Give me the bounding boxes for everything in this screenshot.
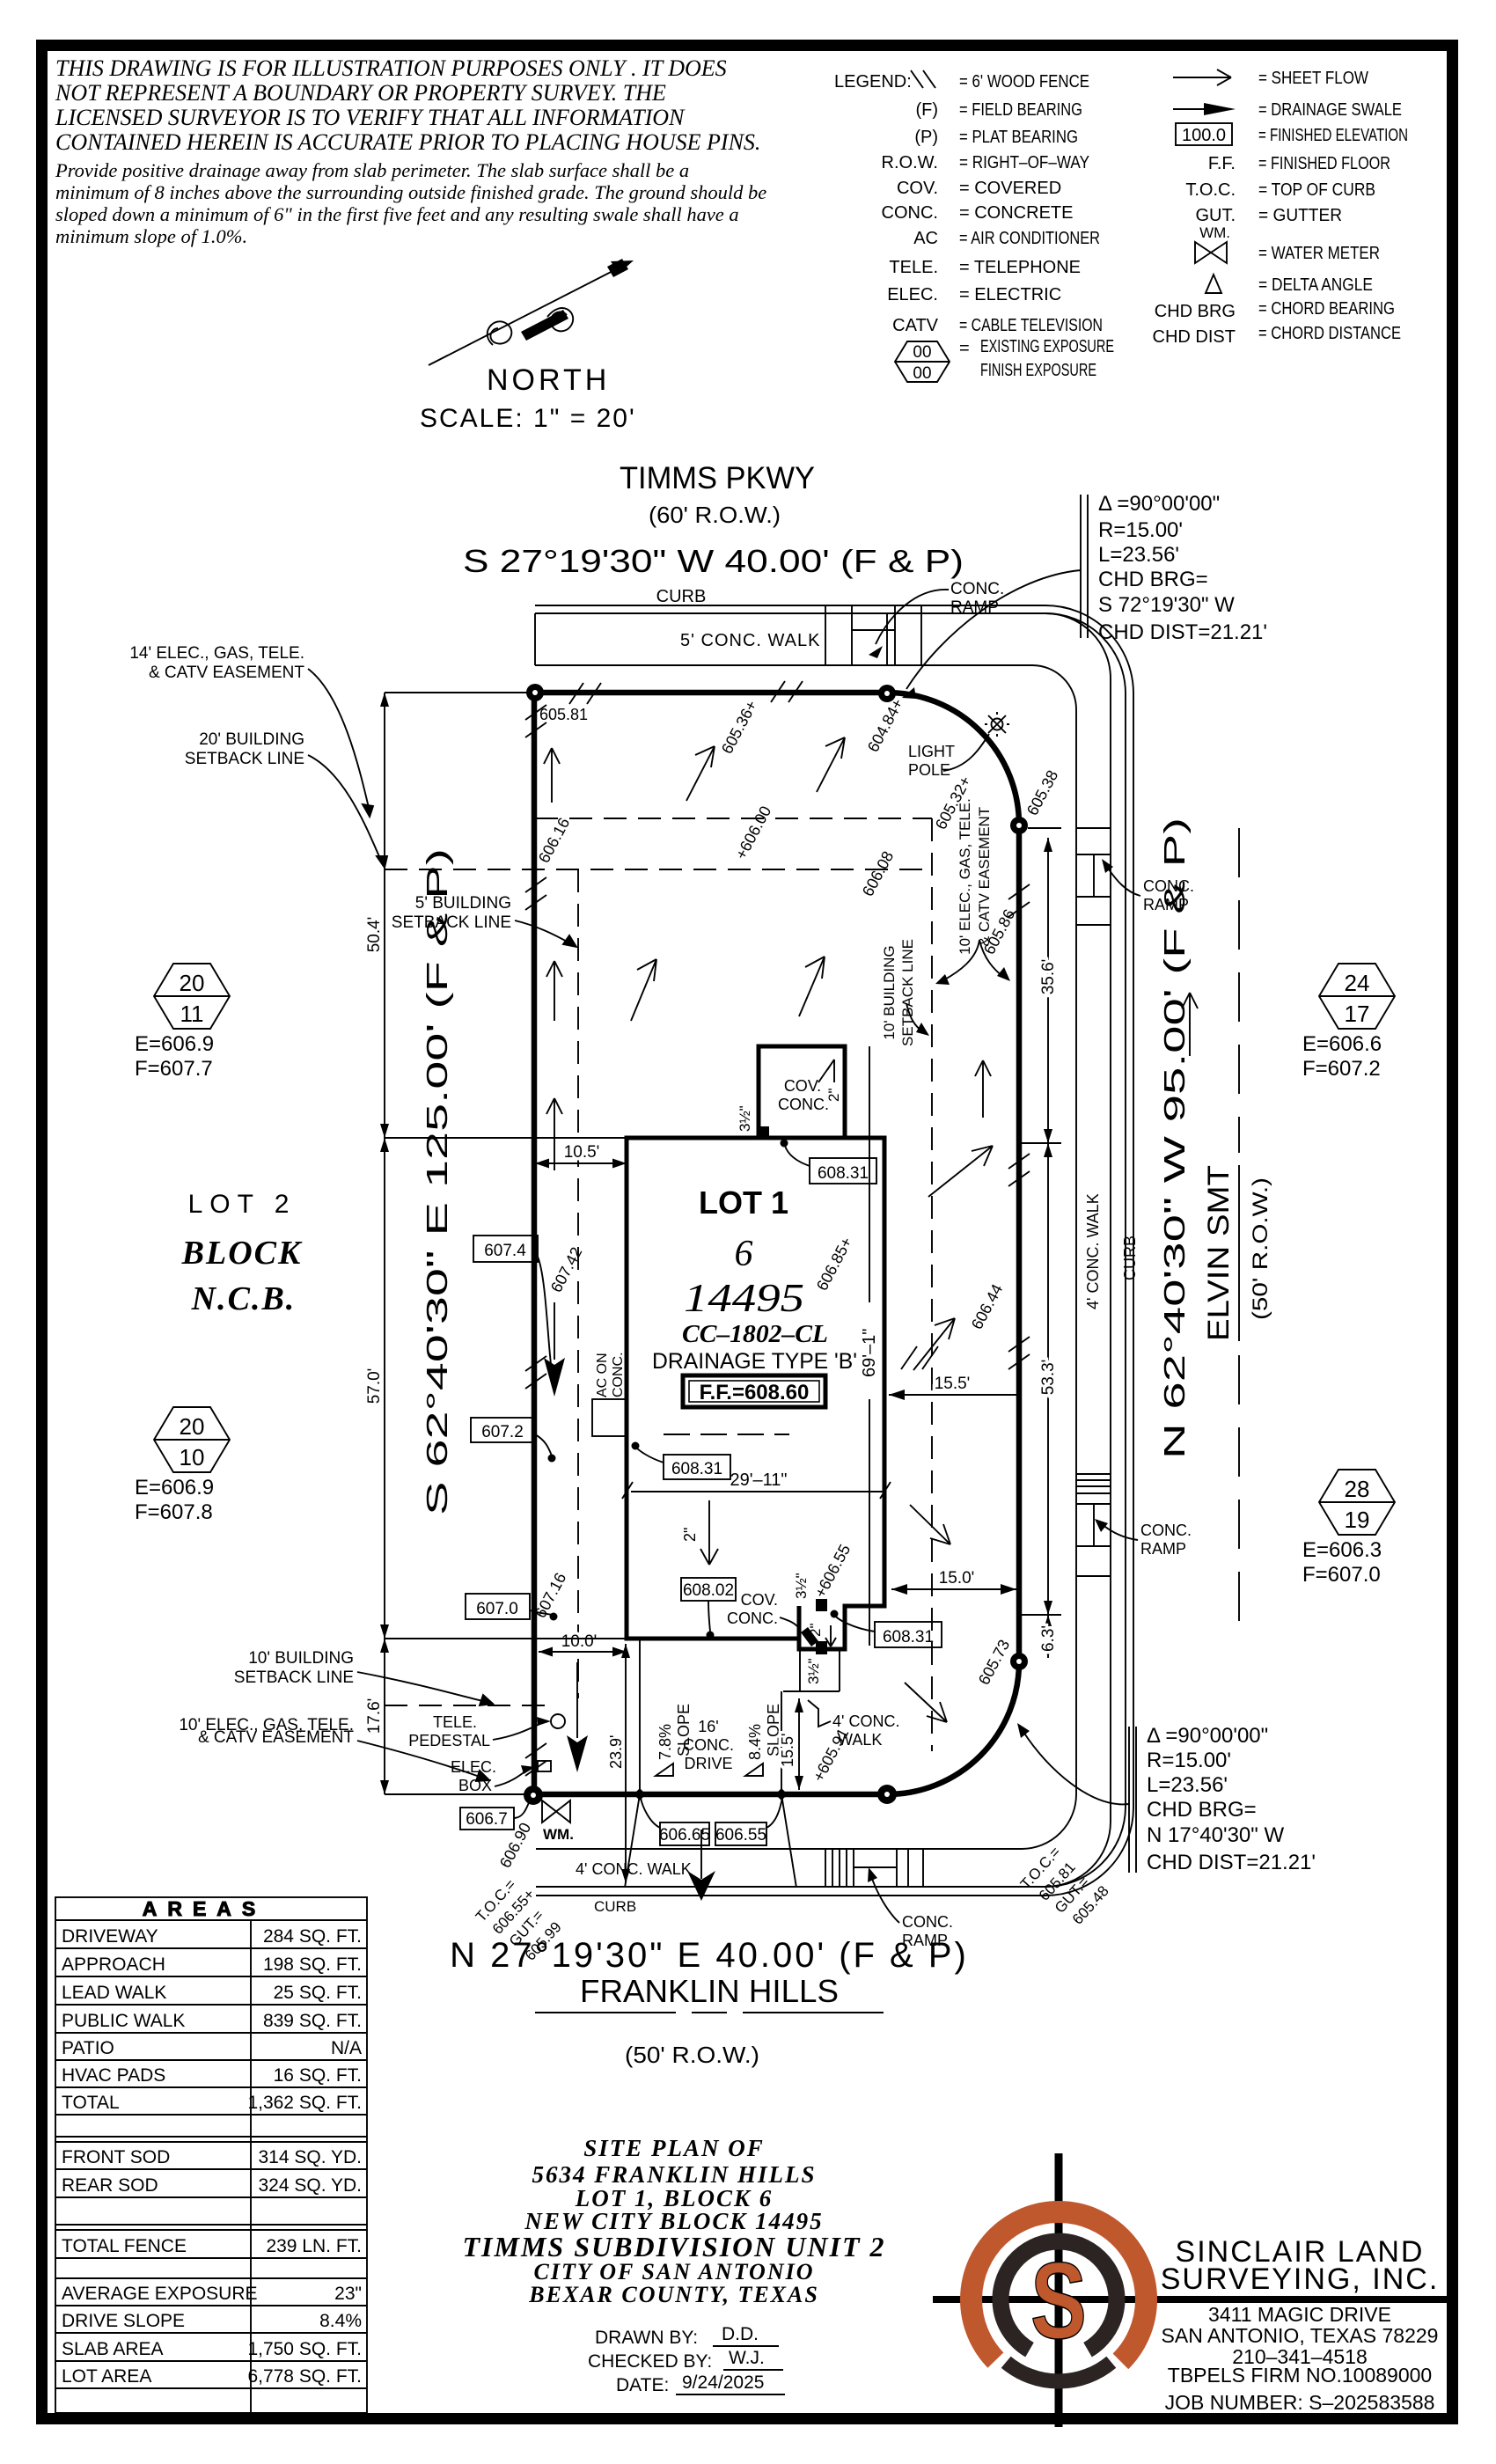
svg-text:Provide positive drainage away: Provide positive drainage away from slab…	[55, 159, 689, 181]
svg-text:1,750 SQ. FT.: 1,750 SQ. FT.	[247, 2339, 362, 2359]
svg-text:LIGHT: LIGHT	[908, 743, 955, 760]
svg-text:57.0': 57.0'	[365, 1368, 384, 1404]
svg-text:ELVIN SMT: ELVIN SMT	[1202, 1165, 1236, 1341]
svg-text:605.38: 605.38	[1023, 767, 1062, 818]
svg-text:8.4%: 8.4%	[746, 1724, 764, 1760]
svg-text:APPROACH: APPROACH	[62, 1954, 165, 1975]
svg-text:606.55: 606.55	[715, 1826, 766, 1844]
svg-text:15.5': 15.5'	[779, 1734, 796, 1767]
svg-text:SLOPE: SLOPE	[675, 1704, 693, 1756]
svg-text:F=607.8: F=607.8	[135, 1500, 213, 1524]
svg-text:100.0: 100.0	[1182, 126, 1226, 145]
svg-text:284 SQ. FT.: 284 SQ. FT.	[263, 1926, 362, 1947]
svg-text:CC–1802–CL: CC–1802–CL	[682, 1320, 828, 1348]
svg-text:= CONCRETE: = CONCRETE	[959, 203, 1073, 223]
svg-text:11: 11	[180, 1001, 204, 1027]
svg-text:AC ON: AC ON	[595, 1353, 610, 1397]
svg-text:SITE PLAN OF: SITE PLAN OF	[583, 2135, 765, 2161]
svg-text:CHD BRG=: CHD BRG=	[1098, 568, 1208, 591]
svg-text:DRIVE: DRIVE	[684, 1755, 732, 1772]
svg-text:7.8%: 7.8%	[656, 1724, 674, 1760]
svg-text:BEXAR COUNTY, TEXAS: BEXAR COUNTY, TEXAS	[528, 2282, 819, 2307]
svg-text:17.6': 17.6'	[365, 1698, 384, 1734]
svg-text:= 6' WOOD FENCE: = 6' WOOD FENCE	[959, 72, 1089, 92]
svg-text:4' CONC. WALK: 4' CONC. WALK	[576, 1860, 692, 1878]
svg-text:FINISH EXPOSURE: FINISH EXPOSURE	[980, 361, 1096, 380]
svg-text:AVERAGE EXPOSURE: AVERAGE EXPOSURE	[62, 2284, 258, 2304]
svg-text:= FINISHED ELEVATION: = FINISHED ELEVATION	[1258, 126, 1408, 145]
svg-text:CATV: CATV	[892, 316, 939, 335]
svg-text:35.6': 35.6'	[1039, 959, 1058, 995]
svg-text:CURB: CURB	[594, 1898, 636, 1915]
svg-text:S: S	[1030, 2241, 1087, 2362]
svg-text:14' ELEC., GAS, TELE.: 14' ELEC., GAS, TELE.	[129, 644, 304, 663]
svg-text:N 27°19'30" E 40.00' (F & P): N 27°19'30" E 40.00' (F & P)	[450, 1936, 969, 1975]
svg-text:= DELTA ANGLE: = DELTA ANGLE	[1258, 275, 1373, 295]
svg-text:DRIVE SLOPE: DRIVE SLOPE	[62, 2311, 185, 2331]
svg-text:COV.: COV.	[741, 1591, 778, 1609]
svg-text:= FIELD BEARING: = FIELD BEARING	[959, 100, 1082, 120]
svg-text:WM.: WM.	[1199, 224, 1230, 241]
svg-text:(60' R.O.W.): (60' R.O.W.)	[649, 502, 781, 528]
svg-text:= PLAT BEARING: = PLAT BEARING	[959, 128, 1078, 147]
svg-text:RAMP: RAMP	[950, 598, 999, 617]
svg-text:17: 17	[1345, 1001, 1370, 1027]
svg-text:DATE:: DATE:	[616, 2375, 669, 2395]
svg-text:19: 19	[1345, 1507, 1370, 1533]
svg-text:314 SQ. YD.: 314 SQ. YD.	[258, 2147, 362, 2167]
svg-text:607.2: 607.2	[481, 1423, 524, 1441]
svg-text:SLAB AREA: SLAB AREA	[62, 2339, 164, 2359]
svg-text:10' BUILDING: 10' BUILDING	[881, 945, 898, 1039]
svg-text:NOT REPRESENT A BOUNDARY OR PR: NOT REPRESENT A BOUNDARY OR PROPERTY SUR…	[55, 80, 666, 106]
svg-text:16': 16'	[698, 1718, 718, 1735]
svg-text:LOT AREA: LOT AREA	[62, 2366, 151, 2387]
svg-text:20: 20	[180, 970, 205, 996]
svg-text:CONC.: CONC.	[1140, 1522, 1192, 1539]
svg-text:198 SQ. FT.: 198 SQ. FT.	[263, 1954, 362, 1975]
svg-text:10' BUILDING: 10' BUILDING	[248, 1649, 354, 1668]
svg-text:TELE.: TELE.	[889, 258, 938, 277]
svg-text:25 SQ. FT.: 25 SQ. FT.	[274, 1983, 362, 2003]
svg-text:10' ELEC., GAS, TELE.: 10' ELEC., GAS, TELE.	[957, 798, 973, 955]
svg-text:606.85+: 606.85+	[813, 1235, 855, 1294]
svg-text:= TOP OF CURB: = TOP OF CURB	[1258, 180, 1375, 200]
svg-text:606.65: 606.65	[659, 1826, 710, 1844]
svg-text:F=607.7: F=607.7	[135, 1057, 213, 1081]
svg-text:DRAINAGE TYPE 'B': DRAINAGE TYPE 'B'	[652, 1349, 857, 1374]
svg-text:CONC.: CONC.	[902, 1913, 953, 1931]
svg-text:E=606.6: E=606.6	[1302, 1032, 1382, 1056]
svg-text:23": 23"	[334, 2284, 362, 2304]
svg-text:00: 00	[913, 343, 931, 362]
svg-text:606.44: 606.44	[968, 1281, 1007, 1332]
svg-text:DRIVEWAY: DRIVEWAY	[62, 1926, 158, 1947]
svg-text:RAMP: RAMP	[1140, 1540, 1186, 1558]
svg-text:= DRAINAGE SWALE: = DRAINAGE SWALE	[1258, 100, 1402, 120]
svg-text:605.36+: 605.36+	[718, 698, 760, 757]
svg-text:10: 10	[180, 1444, 205, 1470]
svg-text:+606.55: +606.55	[811, 1542, 854, 1601]
svg-text:8.4%: 8.4%	[319, 2311, 362, 2331]
svg-text:TOTAL FENCE: TOTAL FENCE	[62, 2236, 187, 2256]
svg-text:= FINISHED FLOOR: = FINISHED FLOOR	[1258, 154, 1390, 173]
svg-text:minimum slope of 1.0%.: minimum slope of 1.0%.	[55, 225, 247, 247]
svg-text:JOB NUMBER: S–202583588: JOB NUMBER: S–202583588	[1165, 2391, 1435, 2414]
svg-text:= COVERED: = COVERED	[959, 179, 1061, 198]
svg-text:& CATV EASEMENT: & CATV EASEMENT	[976, 807, 993, 946]
svg-text:= SHEET FLOW: = SHEET FLOW	[1258, 69, 1368, 88]
svg-text:3½": 3½"	[737, 1105, 753, 1132]
svg-text:607.4: 607.4	[484, 1242, 526, 1260]
svg-text:minimum of 8 inches above the: minimum of 8 inches above the surroundin…	[55, 181, 766, 203]
svg-text:605.81: 605.81	[539, 706, 588, 723]
svg-text:606.7: 606.7	[466, 1810, 508, 1829]
svg-text:F=607.2: F=607.2	[1302, 1057, 1381, 1081]
svg-text:FRONT SOD: FRONT SOD	[62, 2147, 170, 2167]
svg-text:50.4': 50.4'	[365, 917, 384, 953]
svg-text:LEAD WALK: LEAD WALK	[62, 1983, 166, 2003]
svg-text:R=15.00': R=15.00'	[1098, 518, 1183, 542]
svg-text:608.31: 608.31	[671, 1460, 722, 1478]
svg-text:CONC.: CONC.	[778, 1096, 829, 1113]
svg-text:3411 MAGIC DRIVE: 3411 MAGIC DRIVE	[1208, 2303, 1391, 2326]
svg-text:ELEC.: ELEC.	[887, 285, 938, 304]
svg-text:R=15.00': R=15.00'	[1147, 1749, 1231, 1772]
svg-text:BOX: BOX	[458, 1777, 492, 1794]
svg-text:CONC.: CONC.	[1143, 877, 1194, 895]
svg-text:FRANKLIN HILLS: FRANKLIN HILLS	[580, 1973, 839, 2009]
svg-text:607.0: 607.0	[476, 1600, 518, 1618]
svg-text:EXISTING EXPOSURE: EXISTING EXPOSURE	[980, 337, 1114, 356]
svg-text:10.5': 10.5'	[564, 1143, 600, 1162]
svg-text:606.16: 606.16	[535, 815, 574, 866]
svg-text:CURB: CURB	[1121, 1236, 1139, 1280]
svg-text:4' CONC. WALK: 4' CONC. WALK	[1084, 1193, 1102, 1309]
svg-text:24: 24	[1345, 970, 1370, 996]
svg-text:(50' R.O.W.): (50' R.O.W.)	[625, 2042, 759, 2068]
svg-text:9/24/2025: 9/24/2025	[682, 2372, 764, 2393]
svg-text:THIS DRAWING IS FOR ILLUSTRATI: THIS DRAWING IS FOR ILLUSTRATION PURPOSE…	[55, 55, 727, 81]
svg-text:14495: 14495	[684, 1275, 804, 1320]
svg-text:(50' R.O.W.): (50' R.O.W.)	[1249, 1177, 1272, 1320]
svg-text:GUT.: GUT.	[1195, 206, 1236, 225]
svg-text:CONC.: CONC.	[727, 1610, 778, 1627]
svg-text:CHD DIST: CHD DIST	[1153, 327, 1236, 347]
svg-text:6: 6	[735, 1234, 753, 1274]
svg-text:15.5': 15.5'	[935, 1375, 971, 1393]
svg-text:NORTH: NORTH	[487, 363, 610, 397]
svg-text:F=607.0: F=607.0	[1302, 1563, 1381, 1587]
svg-text:CHD DIST=21.21': CHD DIST=21.21'	[1147, 1851, 1316, 1874]
svg-text:= ELECTRIC: = ELECTRIC	[959, 285, 1061, 304]
svg-text:& CATV EASEMENT: & CATV EASEMENT	[198, 1728, 354, 1747]
svg-text:RAMP: RAMP	[1143, 896, 1189, 913]
svg-text:TOTAL: TOTAL	[62, 2093, 120, 2113]
svg-text:HVAC PADS: HVAC PADS	[62, 2065, 165, 2086]
svg-text:SCALE: 1" = 20': SCALE: 1" = 20'	[420, 404, 636, 433]
svg-text:S 27°19'30" W 40.00' (F & P): S 27°19'30" W 40.00' (F & P)	[463, 543, 964, 579]
svg-text:AREAS: AREAS	[143, 1897, 267, 1920]
svg-text:20: 20	[180, 1413, 205, 1440]
svg-text:CHD DIST=21.21': CHD DIST=21.21'	[1098, 620, 1267, 644]
svg-text:5634 FRANKLIN HILLS: 5634 FRANKLIN HILLS	[532, 2161, 816, 2188]
svg-text:28: 28	[1345, 1476, 1370, 1502]
svg-text:= WATER METER: = WATER METER	[1258, 244, 1380, 263]
svg-text:SETBACK LINE: SETBACK LINE	[185, 750, 304, 768]
svg-text:F.F.=608.60: F.F.=608.60	[700, 1381, 810, 1404]
svg-text:16 SQ. FT.: 16 SQ. FT.	[274, 2065, 362, 2086]
svg-text:239 LN. FT.: 239 LN. FT.	[266, 2236, 362, 2256]
svg-text:= TELEPHONE: = TELEPHONE	[959, 258, 1081, 277]
svg-text:3½": 3½"	[805, 1658, 822, 1684]
svg-text:ELEC.: ELEC.	[451, 1758, 496, 1776]
svg-text:TIMMS SUBDIVISION UNIT 2: TIMMS SUBDIVISION UNIT 2	[463, 2231, 886, 2262]
svg-text:PATIO: PATIO	[62, 2038, 114, 2058]
svg-text:= RIGHT–OF–WAY: = RIGHT–OF–WAY	[959, 153, 1089, 172]
svg-text:CONTAINED HEREIN IS ACCURATE P: CONTAINED HEREIN IS ACCURATE PRIOR TO PL…	[55, 129, 760, 155]
svg-text:29'–11": 29'–11"	[730, 1470, 787, 1490]
svg-text:608.31: 608.31	[883, 1628, 934, 1646]
svg-text:= CABLE TELEVISION: = CABLE TELEVISION	[959, 316, 1103, 335]
svg-text:604.84+: 604.84+	[864, 696, 906, 755]
svg-text:CONC.: CONC.	[611, 1352, 626, 1397]
svg-text:3½": 3½"	[793, 1573, 810, 1599]
svg-text:LICENSED SURVEYOR IS TO VERIFY: LICENSED SURVEYOR IS TO VERIFY THAT ALL …	[55, 105, 686, 130]
svg-text:2": 2"	[807, 1624, 824, 1638]
svg-text:COV.: COV.	[897, 179, 938, 198]
svg-text:= AIR CONDITIONER: = AIR CONDITIONER	[959, 229, 1100, 248]
svg-text:CHECKED BY:: CHECKED BY:	[588, 2351, 712, 2372]
svg-text:AC: AC	[913, 229, 938, 248]
svg-text:= CHORD BEARING: = CHORD BEARING	[1258, 299, 1395, 319]
svg-text:Δ =90°00'00": Δ =90°00'00"	[1098, 492, 1220, 516]
svg-text:2": 2"	[825, 1089, 842, 1103]
svg-text:LOT 1: LOT 1	[699, 1184, 788, 1221]
svg-text:N.C.B.: N.C.B.	[191, 1280, 297, 1317]
svg-text:sloped down a minimum of 6" in: sloped down a minimum of 6" in the first…	[55, 203, 739, 225]
svg-text:606.08: 606.08	[859, 848, 898, 899]
svg-text:324 SQ. YD.: 324 SQ. YD.	[258, 2175, 362, 2196]
svg-text:+606.00: +606.00	[732, 803, 774, 862]
svg-text:& CATV EASEMENT: & CATV EASEMENT	[149, 664, 304, 682]
svg-text:5' CONC. WALK: 5' CONC. WALK	[680, 631, 820, 650]
svg-text:SAN ANTONIO, TEXAS 78229: SAN ANTONIO, TEXAS 78229	[1162, 2324, 1439, 2347]
svg-text:53.3': 53.3'	[1039, 1360, 1058, 1396]
svg-text:(F): (F)	[915, 100, 938, 120]
svg-text:TIMMS PKWY: TIMMS PKWY	[620, 461, 815, 495]
svg-text:R.O.W.: R.O.W.	[882, 153, 938, 172]
svg-text:PEDESTAL: PEDESTAL	[408, 1732, 490, 1749]
svg-text:4' CONC.: 4' CONC.	[832, 1712, 899, 1730]
svg-text:= GUTTER: = GUTTER	[1258, 206, 1342, 225]
svg-text:15.0': 15.0'	[939, 1569, 975, 1588]
svg-text:Δ =90°00'00": Δ =90°00'00"	[1147, 1724, 1268, 1748]
svg-text:CONC.: CONC.	[950, 580, 1004, 598]
svg-text:N 17°40'30" W: N 17°40'30" W	[1147, 1823, 1284, 1847]
svg-text:20' BUILDING: 20' BUILDING	[199, 730, 304, 749]
svg-text:607.42: 607.42	[547, 1244, 586, 1295]
svg-text:23.9': 23.9'	[607, 1735, 625, 1769]
svg-text:608.31: 608.31	[818, 1164, 869, 1183]
svg-text:(P): (P)	[914, 128, 938, 147]
svg-text:00: 00	[913, 364, 931, 383]
svg-text:T.O.C.: T.O.C.	[1185, 180, 1236, 200]
svg-text:S 72°19'30" W: S 72°19'30" W	[1098, 593, 1235, 617]
svg-text:+605.91: +605.91	[810, 1726, 852, 1785]
svg-text:605.73: 605.73	[975, 1637, 1014, 1688]
svg-text:TBPELS FIRM NO.10089000: TBPELS FIRM NO.10089000	[1168, 2364, 1432, 2387]
svg-text:N/A: N/A	[331, 2038, 362, 2058]
svg-text:SURVEYING, INC.: SURVEYING, INC.	[1161, 2262, 1440, 2296]
svg-text:69'–1": 69'–1"	[860, 1329, 879, 1377]
svg-text:COV.: COV.	[784, 1077, 821, 1095]
svg-text:S 62°40'30" E 125.00' (F & P): S 62°40'30" E 125.00' (F & P)	[421, 848, 453, 1515]
svg-text:6.3': 6.3'	[1039, 1625, 1058, 1652]
svg-text:WM.: WM.	[543, 1826, 574, 1843]
svg-text:DRAWN BY:: DRAWN BY:	[595, 2328, 698, 2348]
svg-text:SETBACK LINE: SETBACK LINE	[234, 1668, 354, 1687]
svg-text:TELE.: TELE.	[433, 1713, 477, 1731]
svg-text:608.02: 608.02	[683, 1581, 734, 1600]
svg-text:LEGEND:: LEGEND:	[834, 72, 912, 92]
svg-text:F.F.: F.F.	[1208, 154, 1236, 173]
svg-text:LOT 2: LOT 2	[188, 1190, 297, 1219]
svg-text:CURB: CURB	[656, 587, 707, 606]
svg-text:PUBLIC WALK: PUBLIC WALK	[62, 2011, 185, 2031]
svg-text:6,778 SQ. FT.: 6,778 SQ. FT.	[247, 2366, 362, 2387]
svg-text:E=606.3: E=606.3	[1302, 1538, 1382, 1562]
svg-text:1,362 SQ. FT.: 1,362 SQ. FT.	[247, 2093, 362, 2113]
svg-text:CHD BRG: CHD BRG	[1155, 302, 1236, 321]
svg-text:10.0': 10.0'	[561, 1632, 598, 1651]
svg-text:D.D.: D.D.	[722, 2324, 759, 2344]
svg-text:N 62°40'30" W 95.00' (F & P): N 62°40'30" W 95.00' (F & P)	[1158, 818, 1191, 1459]
svg-text:839 SQ. FT.: 839 SQ. FT.	[263, 2011, 362, 2031]
svg-text:BLOCK: BLOCK	[181, 1235, 303, 1272]
svg-text:REAR SOD: REAR SOD	[62, 2175, 158, 2196]
svg-text:L=23.56': L=23.56'	[1098, 543, 1179, 567]
svg-text:2": 2"	[681, 1528, 699, 1542]
svg-text:W.J.: W.J.	[729, 2348, 765, 2368]
svg-text:=: =	[959, 339, 970, 358]
svg-text:607.16: 607.16	[532, 1570, 570, 1621]
svg-text:SETBACK LINE: SETBACK LINE	[899, 939, 916, 1046]
svg-text:E=606.9: E=606.9	[135, 1476, 214, 1500]
svg-text:CONC.: CONC.	[882, 203, 938, 223]
svg-text:CITY OF SAN ANTONIO: CITY OF SAN ANTONIO	[534, 2259, 815, 2284]
svg-text:L=23.56': L=23.56'	[1147, 1773, 1228, 1797]
svg-text:= CHORD DISTANCE: = CHORD DISTANCE	[1258, 324, 1401, 343]
svg-text:CHD BRG=: CHD BRG=	[1147, 1798, 1257, 1822]
svg-text:E=606.9: E=606.9	[135, 1032, 214, 1056]
